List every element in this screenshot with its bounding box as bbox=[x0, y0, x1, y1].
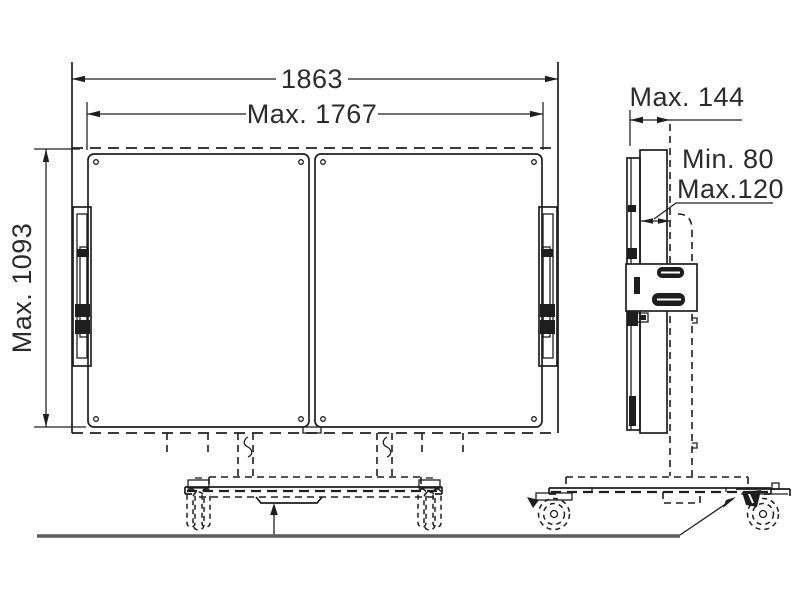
brake-lever bbox=[527, 497, 539, 508]
corner-screw bbox=[299, 417, 304, 422]
arrowhead-right-icon bbox=[530, 111, 543, 117]
technical-drawing-page: 1863 Max. 1767 Max. 1093 Max. 144 Min. 8… bbox=[0, 0, 800, 600]
arrowhead-right-icon bbox=[657, 117, 670, 123]
clamp-block bbox=[540, 320, 555, 334]
front-caster-left bbox=[187, 478, 210, 530]
wheel-hub bbox=[551, 511, 558, 518]
plate-knob bbox=[772, 483, 779, 489]
wheel-inner bbox=[544, 504, 565, 525]
corner-screw bbox=[94, 417, 99, 422]
side-caster-left bbox=[527, 493, 572, 530]
column-dashed-lines bbox=[167, 433, 463, 477]
panel-clamp bbox=[629, 396, 636, 426]
arrowhead-left-icon bbox=[72, 76, 85, 82]
arrowhead-down-icon bbox=[43, 414, 49, 427]
trolley-base-front bbox=[185, 477, 442, 503]
dimension-depth: Max. 144 bbox=[629, 82, 744, 146]
vesa-mount-bracket bbox=[626, 264, 697, 311]
clamp-block bbox=[77, 249, 89, 257]
dim-label-gap-max: Max.120 bbox=[677, 174, 784, 204]
dimension-drawing: 1863 Max. 1767 Max. 1093 Max. 144 Min. 8… bbox=[0, 0, 800, 600]
left-display-panel bbox=[88, 154, 309, 427]
side-caster-right bbox=[736, 483, 790, 530]
panel-outline bbox=[88, 154, 309, 427]
clip-fill bbox=[639, 315, 646, 320]
clamp-block bbox=[541, 249, 553, 257]
corner-screw bbox=[532, 160, 537, 165]
trolley-base-side bbox=[549, 477, 771, 503]
dim-label-panel-height: Max. 1093 bbox=[7, 223, 37, 354]
cable-squiggle bbox=[244, 437, 391, 457]
arrowhead-right-icon bbox=[545, 76, 558, 82]
column-back-dashed bbox=[678, 214, 692, 476]
dim-label-depth: Max. 144 bbox=[629, 82, 744, 112]
right-display-panel bbox=[315, 154, 542, 427]
dimension-panel-height: Max. 1093 bbox=[7, 149, 86, 427]
corner-screw bbox=[532, 417, 537, 422]
base-pointer-arrow bbox=[270, 503, 278, 535]
clamp-block bbox=[75, 304, 90, 317]
front-caster-right bbox=[418, 478, 441, 530]
wheel-inner bbox=[753, 504, 774, 525]
arrowhead-up-icon bbox=[43, 149, 49, 162]
arrowhead-icon bbox=[723, 497, 736, 508]
leader-line bbox=[654, 203, 773, 219]
arrowhead-left-icon bbox=[630, 117, 643, 123]
base-plate bbox=[185, 487, 442, 503]
dim-label-gap-min: Min. 80 bbox=[682, 144, 774, 174]
dim-label-panel-width: Max. 1767 bbox=[247, 99, 378, 129]
corner-screw bbox=[321, 417, 326, 422]
caster-fork-leg bbox=[202, 489, 210, 527]
panel-outline bbox=[315, 154, 542, 427]
arrowhead-left-icon bbox=[641, 218, 653, 224]
panel-clamp bbox=[627, 248, 637, 259]
lift-columns-hidden bbox=[167, 433, 463, 477]
clamp-block bbox=[75, 320, 90, 334]
arrowhead-up-icon bbox=[270, 503, 278, 515]
arrowhead-right-icon bbox=[658, 218, 670, 224]
dimension-wall-gap: Min. 80 Max.120 bbox=[641, 144, 784, 224]
clamp-block bbox=[540, 304, 555, 317]
base-dashed-outline bbox=[566, 477, 748, 503]
dimension-overall-width: 1863 bbox=[72, 64, 558, 94]
corner-screw bbox=[321, 160, 326, 165]
corner-screw bbox=[94, 160, 99, 165]
dimension-panel-width: Max. 1767 bbox=[87, 99, 543, 150]
front-view bbox=[72, 62, 558, 535]
center-seam-tab bbox=[303, 427, 321, 433]
wheel-hub bbox=[760, 511, 767, 518]
bracket-bar bbox=[634, 277, 640, 294]
arrowhead-left-icon bbox=[87, 111, 100, 117]
dim-label-overall-width: 1863 bbox=[281, 64, 343, 94]
extension-lines bbox=[34, 149, 86, 427]
panel-clamp bbox=[628, 205, 636, 212]
panel-clamp bbox=[627, 310, 638, 326]
corner-screw bbox=[299, 160, 304, 165]
